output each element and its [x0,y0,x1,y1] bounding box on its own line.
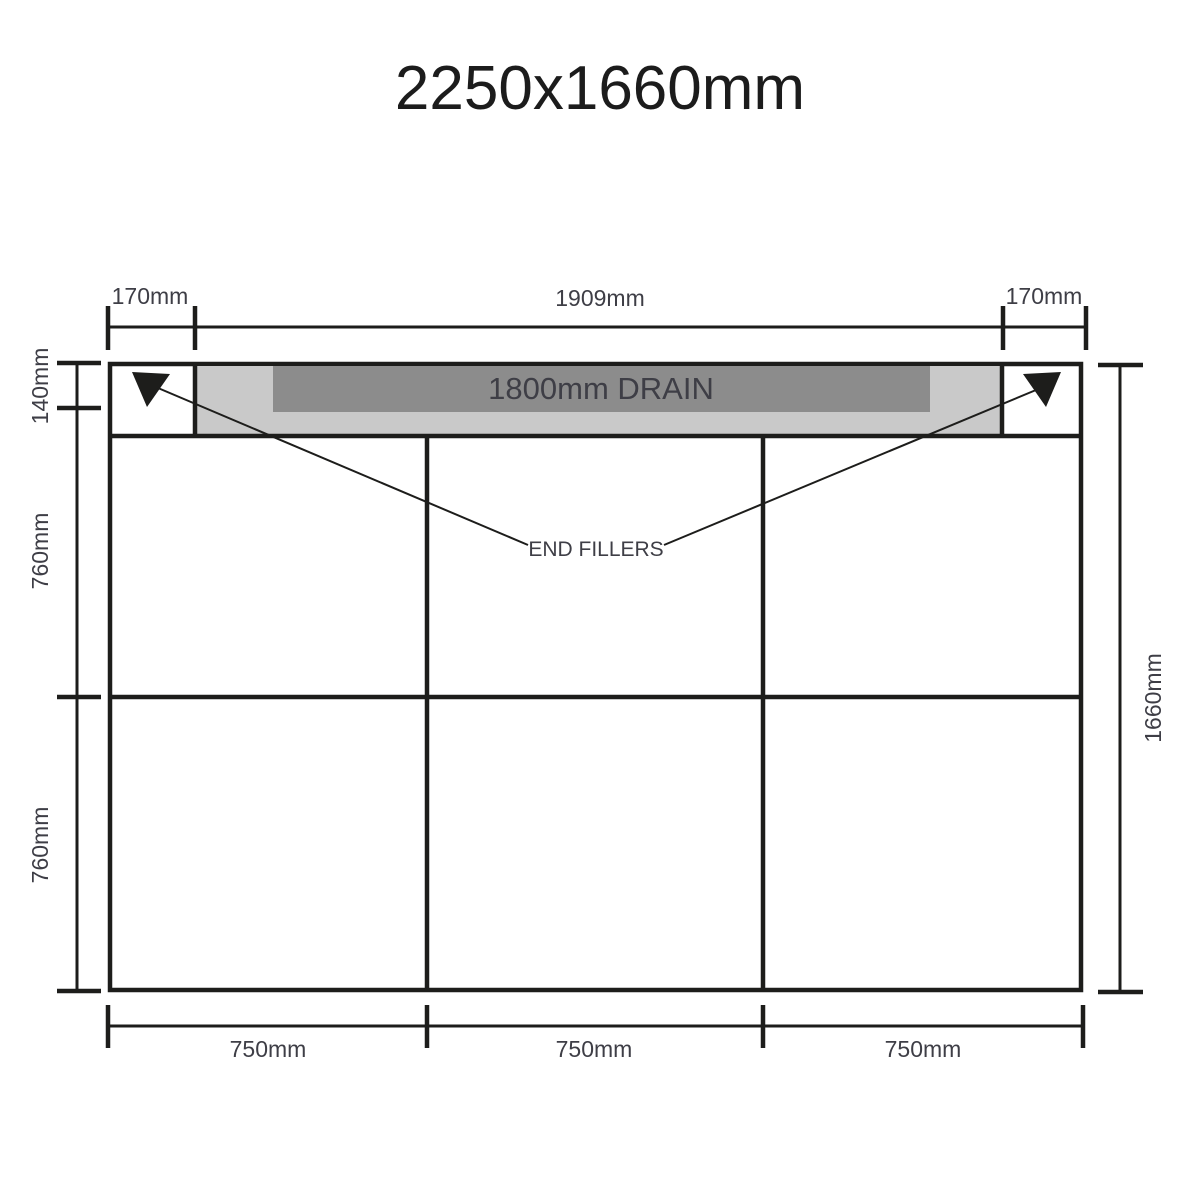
drain-layout-page: 2250x1660mm 1800mm DRAIN END FILLERS [0,0,1200,1200]
drain-label: 1800mm DRAIN [488,371,714,406]
dim-top-left-label: 170mm [112,283,189,309]
dim-left-bottom-label: 760mm [27,807,53,884]
tray-plan: 1800mm DRAIN [110,364,1081,990]
dim-bottom-right-label: 750mm [885,1036,962,1062]
dim-bottom-left-label: 750mm [230,1036,307,1062]
tray-outline [110,364,1081,990]
end-fillers-label: END FILLERS [528,538,663,561]
end-filler-arrow-left-icon [132,372,170,407]
top-dimension: 170mm 1909mm 170mm [108,283,1086,350]
dim-left-middle-label: 760mm [27,513,53,590]
dim-left-top-label: 140mm [27,348,53,425]
dim-bottom-center-label: 750mm [556,1036,633,1062]
bottom-dimension: 750mm 750mm 750mm [108,1005,1083,1062]
end-filler-arrow-right-icon [1023,372,1061,407]
dim-top-right-label: 170mm [1006,283,1083,309]
dim-right-label: 1660mm [1140,653,1166,742]
left-dimension: 140mm 760mm 760mm [27,348,101,991]
dim-top-center-label: 1909mm [555,285,644,311]
right-dimension: 1660mm [1098,365,1166,992]
dimension-diagram: 1800mm DRAIN END FILLERS 170mm 1909mm 17… [0,0,1200,1200]
